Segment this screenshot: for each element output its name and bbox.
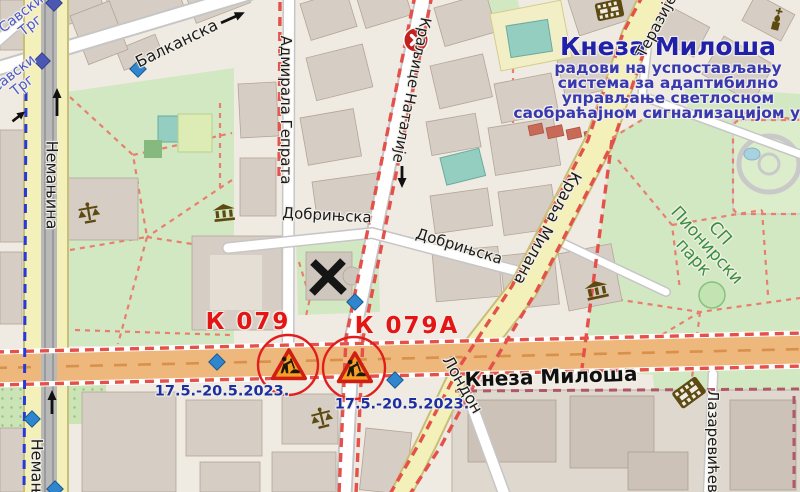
pool [440, 148, 486, 185]
worksite-label-k079a: К 079А [355, 314, 460, 338]
pool [506, 19, 552, 57]
pond [744, 148, 760, 160]
worksite-label-k079: К 079 [206, 310, 291, 334]
annotation-title: Кнеза Милоша [560, 34, 776, 60]
street-label-nemanjina-top: Немањина [43, 141, 60, 230]
street-label-lazareviceva: Лазаревићева [704, 390, 720, 492]
traffic-map[interactable]: Кнеза Милоша радови на успостављању сист… [0, 0, 800, 492]
street-label-nemanjina-bottom: Немањина [28, 439, 45, 492]
annotation-line-4: саобраћајном сигнализацијом у Београд [513, 105, 800, 121]
worksite-dates-k079: 17.5.-20.5.2023. [155, 384, 289, 399]
road-kneza-milosa [0, 349, 800, 368]
worksite-dates-k079a: 17.5.-20.5.2023. [335, 397, 469, 412]
street-label-admirala-geprata: Адмирала Гепрата [277, 36, 293, 185]
